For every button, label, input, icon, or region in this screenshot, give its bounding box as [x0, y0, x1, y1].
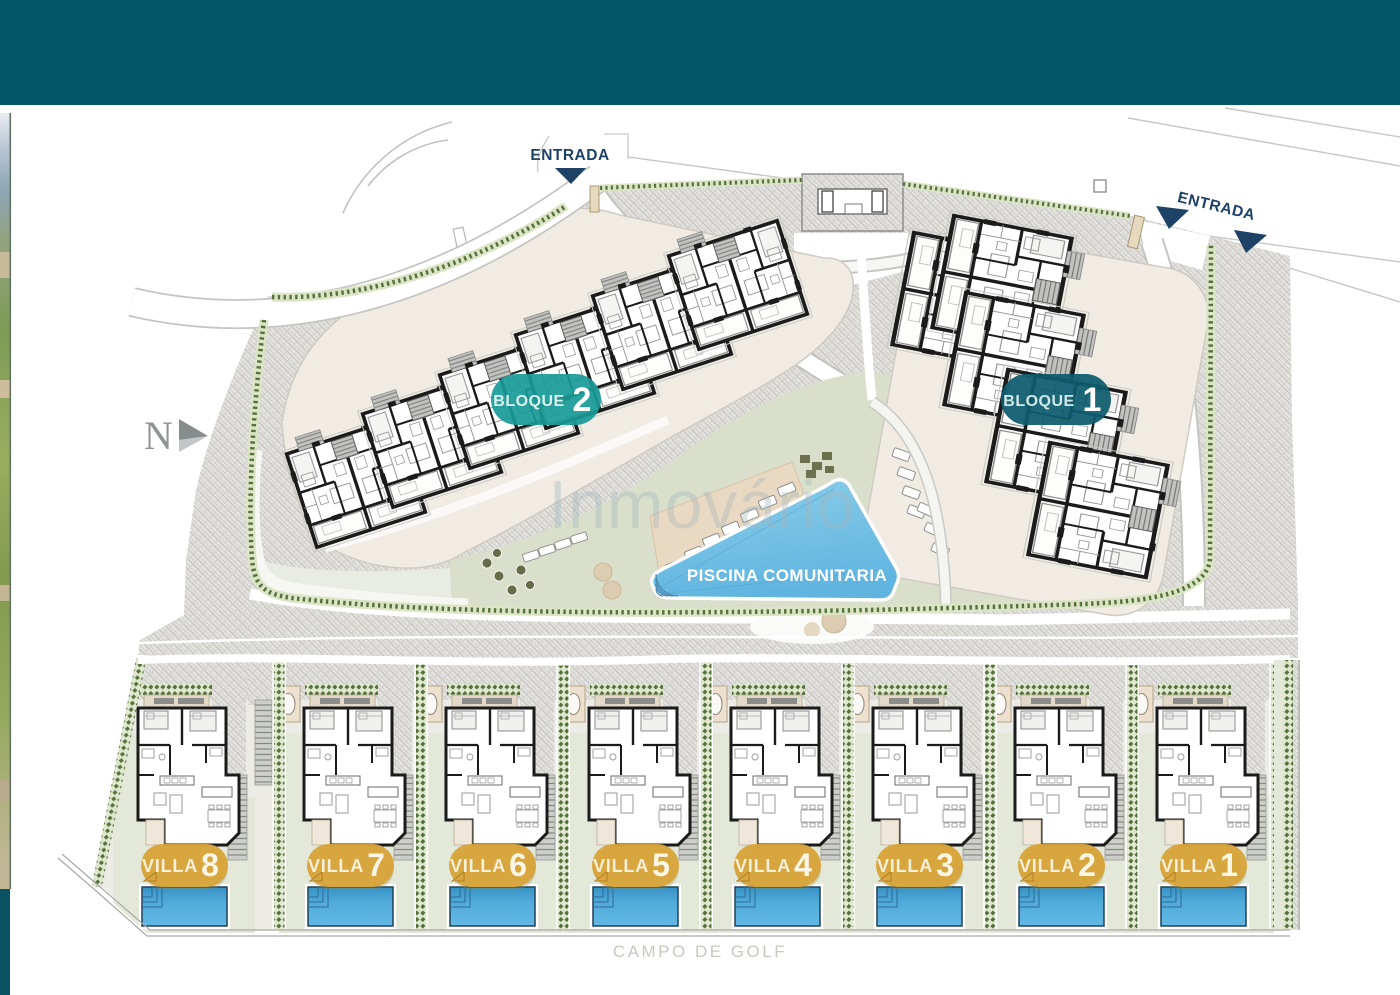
svg-text:6: 6 — [509, 847, 527, 883]
svg-text:5: 5 — [652, 847, 670, 883]
svg-text:CAMPO DE GOLF: CAMPO DE GOLF — [613, 942, 787, 961]
svg-text:ENTRADA: ENTRADA — [530, 147, 609, 164]
svg-text:VILLA: VILLA — [450, 856, 506, 876]
svg-text:4: 4 — [794, 847, 812, 883]
svg-text:VILLA: VILLA — [735, 856, 791, 876]
svg-text:BLOQUE: BLOQUE — [493, 393, 564, 410]
svg-text:1: 1 — [1083, 381, 1102, 419]
svg-text:7: 7 — [367, 847, 385, 883]
svg-text:BLOQUE: BLOQUE — [1003, 393, 1074, 410]
svg-text:PISCINA COMUNITARIA: PISCINA COMUNITARIA — [687, 566, 887, 585]
svg-text:3: 3 — [936, 847, 954, 883]
svg-text:N: N — [144, 413, 173, 458]
svg-text:VILLA: VILLA — [877, 856, 933, 876]
svg-text:VILLA: VILLA — [1019, 856, 1075, 876]
svg-text:Inmovário: Inmovário — [548, 467, 856, 543]
svg-text:1: 1 — [1220, 847, 1238, 883]
svg-text:VILLA: VILLA — [142, 856, 198, 876]
svg-text:VILLA: VILLA — [308, 856, 364, 876]
svg-text:VILLA: VILLA — [593, 856, 649, 876]
svg-text:2: 2 — [573, 381, 592, 419]
svg-text:2: 2 — [1078, 847, 1096, 883]
svg-text:VILLA: VILLA — [1161, 856, 1217, 876]
svg-text:8: 8 — [201, 847, 219, 883]
